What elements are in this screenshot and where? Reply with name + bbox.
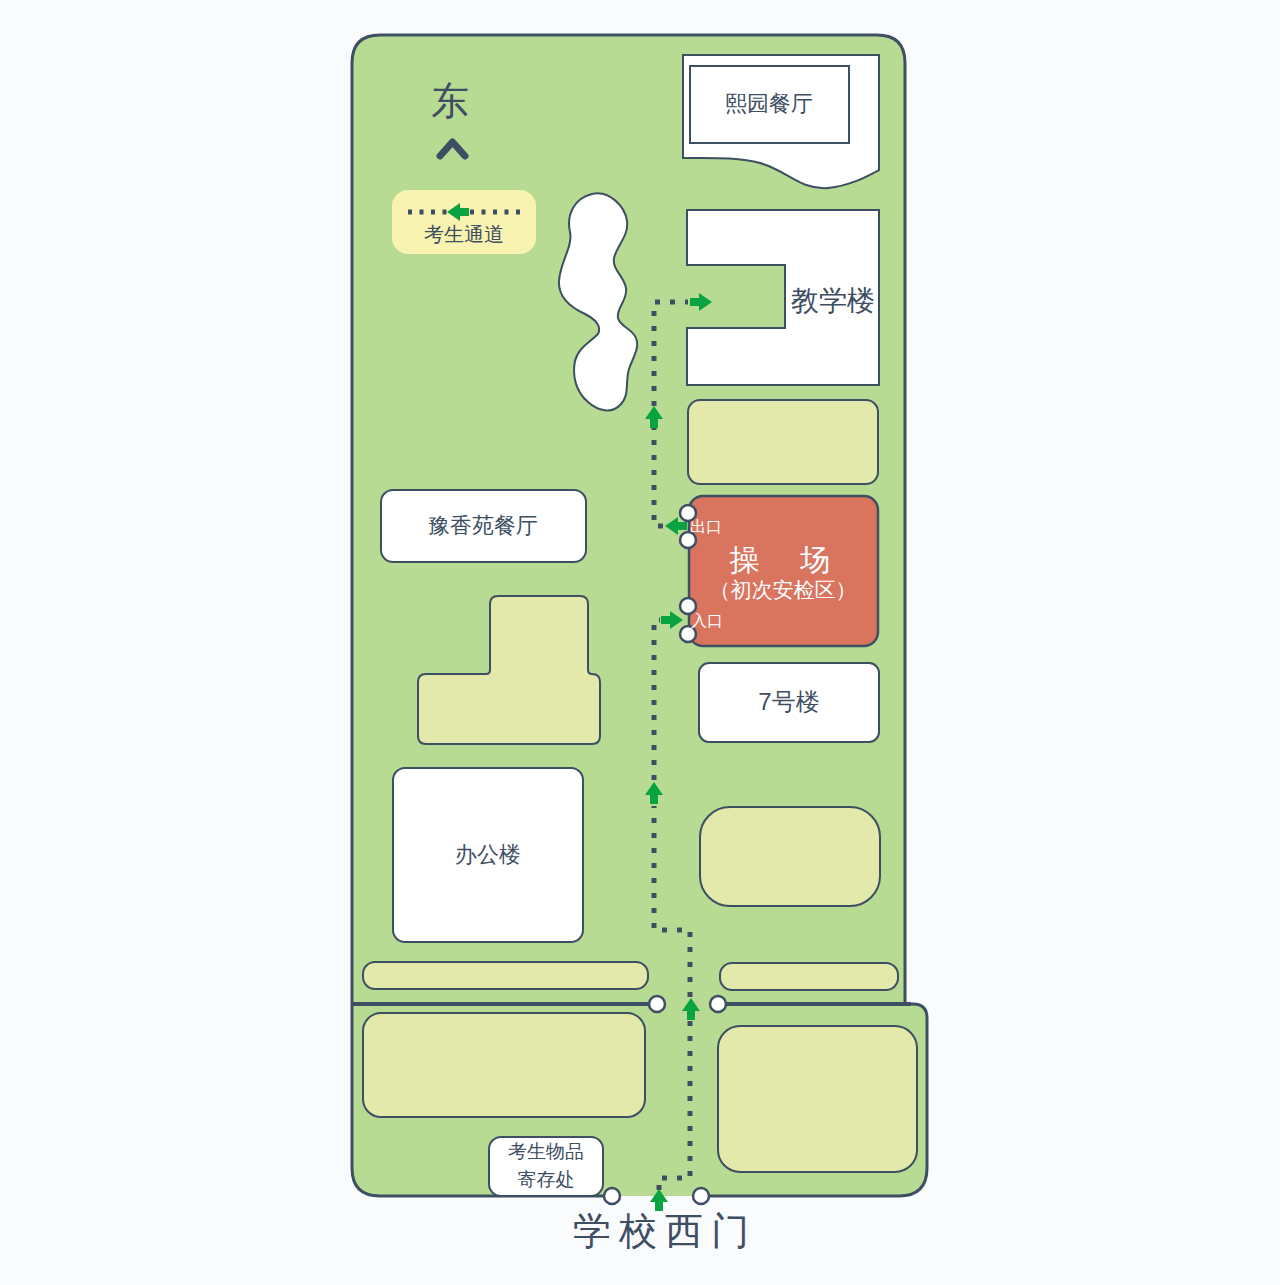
gate-marker-circle-icon <box>649 996 665 1012</box>
orientation-label: 东 <box>431 79 473 125</box>
playground-exit-label: 出口 <box>690 517 722 536</box>
building-south-west <box>363 1013 645 1117</box>
west-gate-label: 学校西门 <box>573 1209 757 1255</box>
playground-subtitle: （初次安检区） <box>710 577 857 602</box>
building-strip-east <box>720 963 898 990</box>
building-label-office: 办公楼 <box>455 842 521 868</box>
storage-label-line2: 寄存处 <box>508 1166 584 1194</box>
building-label-yuxiangyuan: 豫香苑餐厅 <box>428 513 538 539</box>
storage-label: 考生物品 寄存处 <box>508 1138 584 1193</box>
campus-map-drawing <box>0 0 1280 1285</box>
building-label-xiyuan: 熙园餐厅 <box>725 91 813 117</box>
campus-map: 东 考生通道 熙园餐厅 教学楼 豫香苑餐厅 操 场 （初次安检区） 出口 入口 … <box>0 0 1280 1285</box>
gate-marker-circle-icon <box>693 1188 709 1204</box>
building-strip-west <box>363 962 648 989</box>
legend-label: 考生通道 <box>424 222 504 246</box>
gate-marker-circle-icon <box>710 996 726 1012</box>
building-south-east <box>718 1026 917 1172</box>
building-annex-north <box>688 400 878 484</box>
storage-label-line1: 考生物品 <box>508 1138 584 1166</box>
playground-entrance-label: 入口 <box>691 611 723 630</box>
building-annex-south <box>700 807 880 906</box>
building-label-teaching: 教学楼 <box>791 284 875 318</box>
gate-marker-circle-icon <box>604 1188 620 1204</box>
playground-title: 操 场 <box>730 542 846 578</box>
building-label-no7: 7号楼 <box>758 688 819 717</box>
